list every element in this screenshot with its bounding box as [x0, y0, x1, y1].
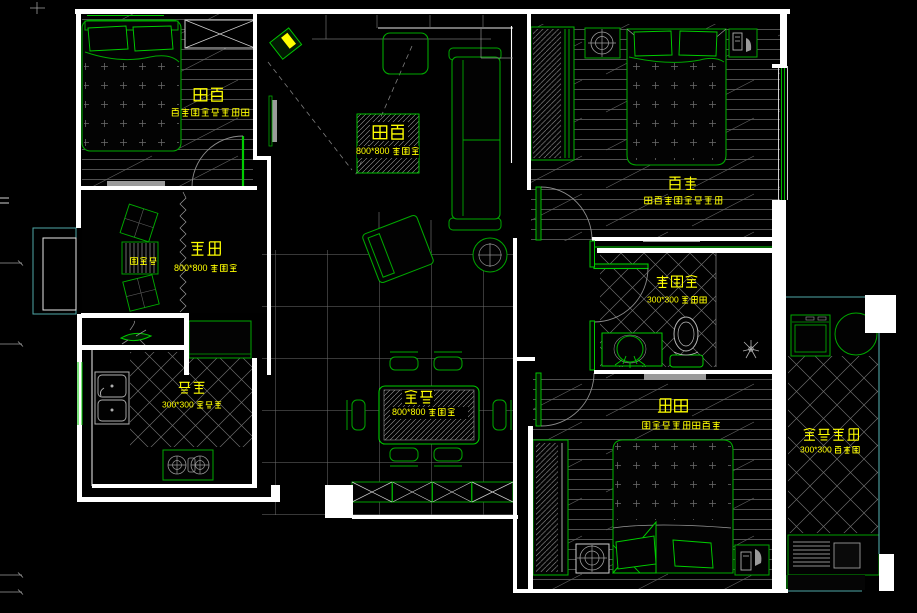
svg-text:300*300: 300*300 [162, 399, 194, 409]
svg-text:300*300: 300*300 [800, 444, 832, 454]
svg-text:800*800: 800*800 [392, 407, 426, 417]
svg-text:800*800: 800*800 [174, 263, 208, 273]
svg-text:300*300: 300*300 [647, 294, 679, 304]
svg-text:800*800: 800*800 [356, 146, 390, 156]
